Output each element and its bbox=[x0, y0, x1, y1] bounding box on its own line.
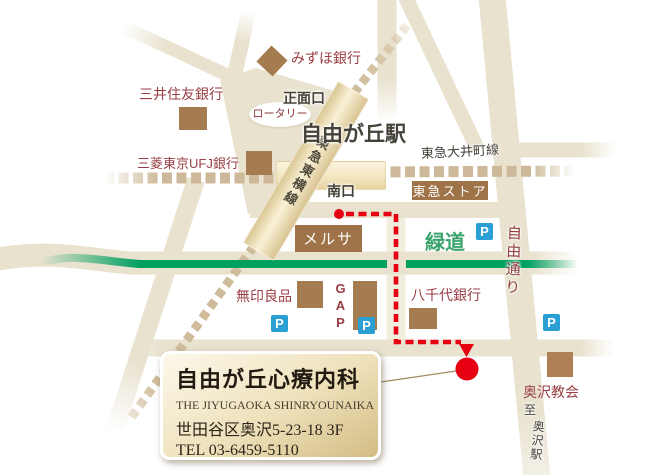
melsa-label: メルサ bbox=[303, 228, 354, 249]
label-ufj-bank: 三菱東京UFJ銀行 bbox=[137, 157, 239, 170]
parking-icon: P bbox=[271, 315, 288, 332]
building-okusawa-church bbox=[547, 352, 573, 377]
tokyu-store-label: 東急ストア bbox=[412, 181, 487, 200]
label-muji: 無印良品 bbox=[236, 289, 292, 303]
building-ufj bbox=[246, 151, 272, 175]
clinic-address: 世田谷区奥沢5-23-18 3F bbox=[176, 416, 378, 440]
parking-label: P bbox=[362, 318, 371, 333]
label-jiyu-dori: 自由通り bbox=[504, 225, 522, 297]
clinic-info-box: 自由が丘心療内科 THE JIYUGAOKA SHINRYOUNAIKA 世田谷… bbox=[160, 351, 381, 460]
label-front-exit: 正面口 bbox=[283, 91, 325, 105]
label-yachiyo-bank: 八千代銀行 bbox=[411, 288, 481, 302]
route-arrow-icon bbox=[459, 344, 474, 357]
label-smbc-bank: 三井住友銀行 bbox=[139, 87, 223, 101]
tokyu-store-box: 東急ストア bbox=[412, 181, 488, 200]
building-yachiyo bbox=[409, 308, 437, 329]
parking-icon: P bbox=[476, 223, 493, 240]
label-ryokudo: 緑道 bbox=[425, 233, 465, 253]
label-oimachi-line: 東急大井町線 bbox=[421, 143, 500, 160]
label-station-name: 自由が丘駅 bbox=[301, 124, 406, 145]
parking-icon: P bbox=[358, 317, 375, 334]
label-okusawa-church: 奥沢教会 bbox=[523, 385, 579, 399]
parking-label: P bbox=[547, 315, 556, 330]
building-smbc bbox=[179, 107, 207, 130]
clinic-title: 自由が丘心療内科 bbox=[176, 362, 378, 394]
label-mizuho-bank: みずほ銀行 bbox=[291, 51, 361, 65]
clinic-location-dot bbox=[456, 358, 479, 381]
clinic-pointer-line bbox=[381, 371, 456, 382]
clinic-subtitle: THE JIYUGAOKA SHINRYOUNAIKA bbox=[176, 398, 378, 413]
parking-label: P bbox=[275, 316, 284, 331]
label-south-exit: 南口 bbox=[327, 184, 355, 198]
label-to-okusawa-prefix: 至 bbox=[524, 404, 536, 416]
building-muji bbox=[297, 281, 323, 308]
label-to-okusawa-station: 奥沢駅 bbox=[529, 420, 545, 463]
parking-icon: P bbox=[543, 314, 560, 331]
jiyugaoka-access-map: ロータリー 東急東横線 東急ストア メルサ P P P P みずほ銀行 三井住友… bbox=[0, 0, 666, 475]
melsa-box: メルサ bbox=[295, 225, 362, 252]
label-gap: GAP bbox=[334, 281, 347, 332]
route-start-dot bbox=[334, 209, 344, 219]
parking-label: P bbox=[480, 224, 489, 239]
clinic-tel: TEL 03-6459-5110 bbox=[176, 442, 378, 460]
